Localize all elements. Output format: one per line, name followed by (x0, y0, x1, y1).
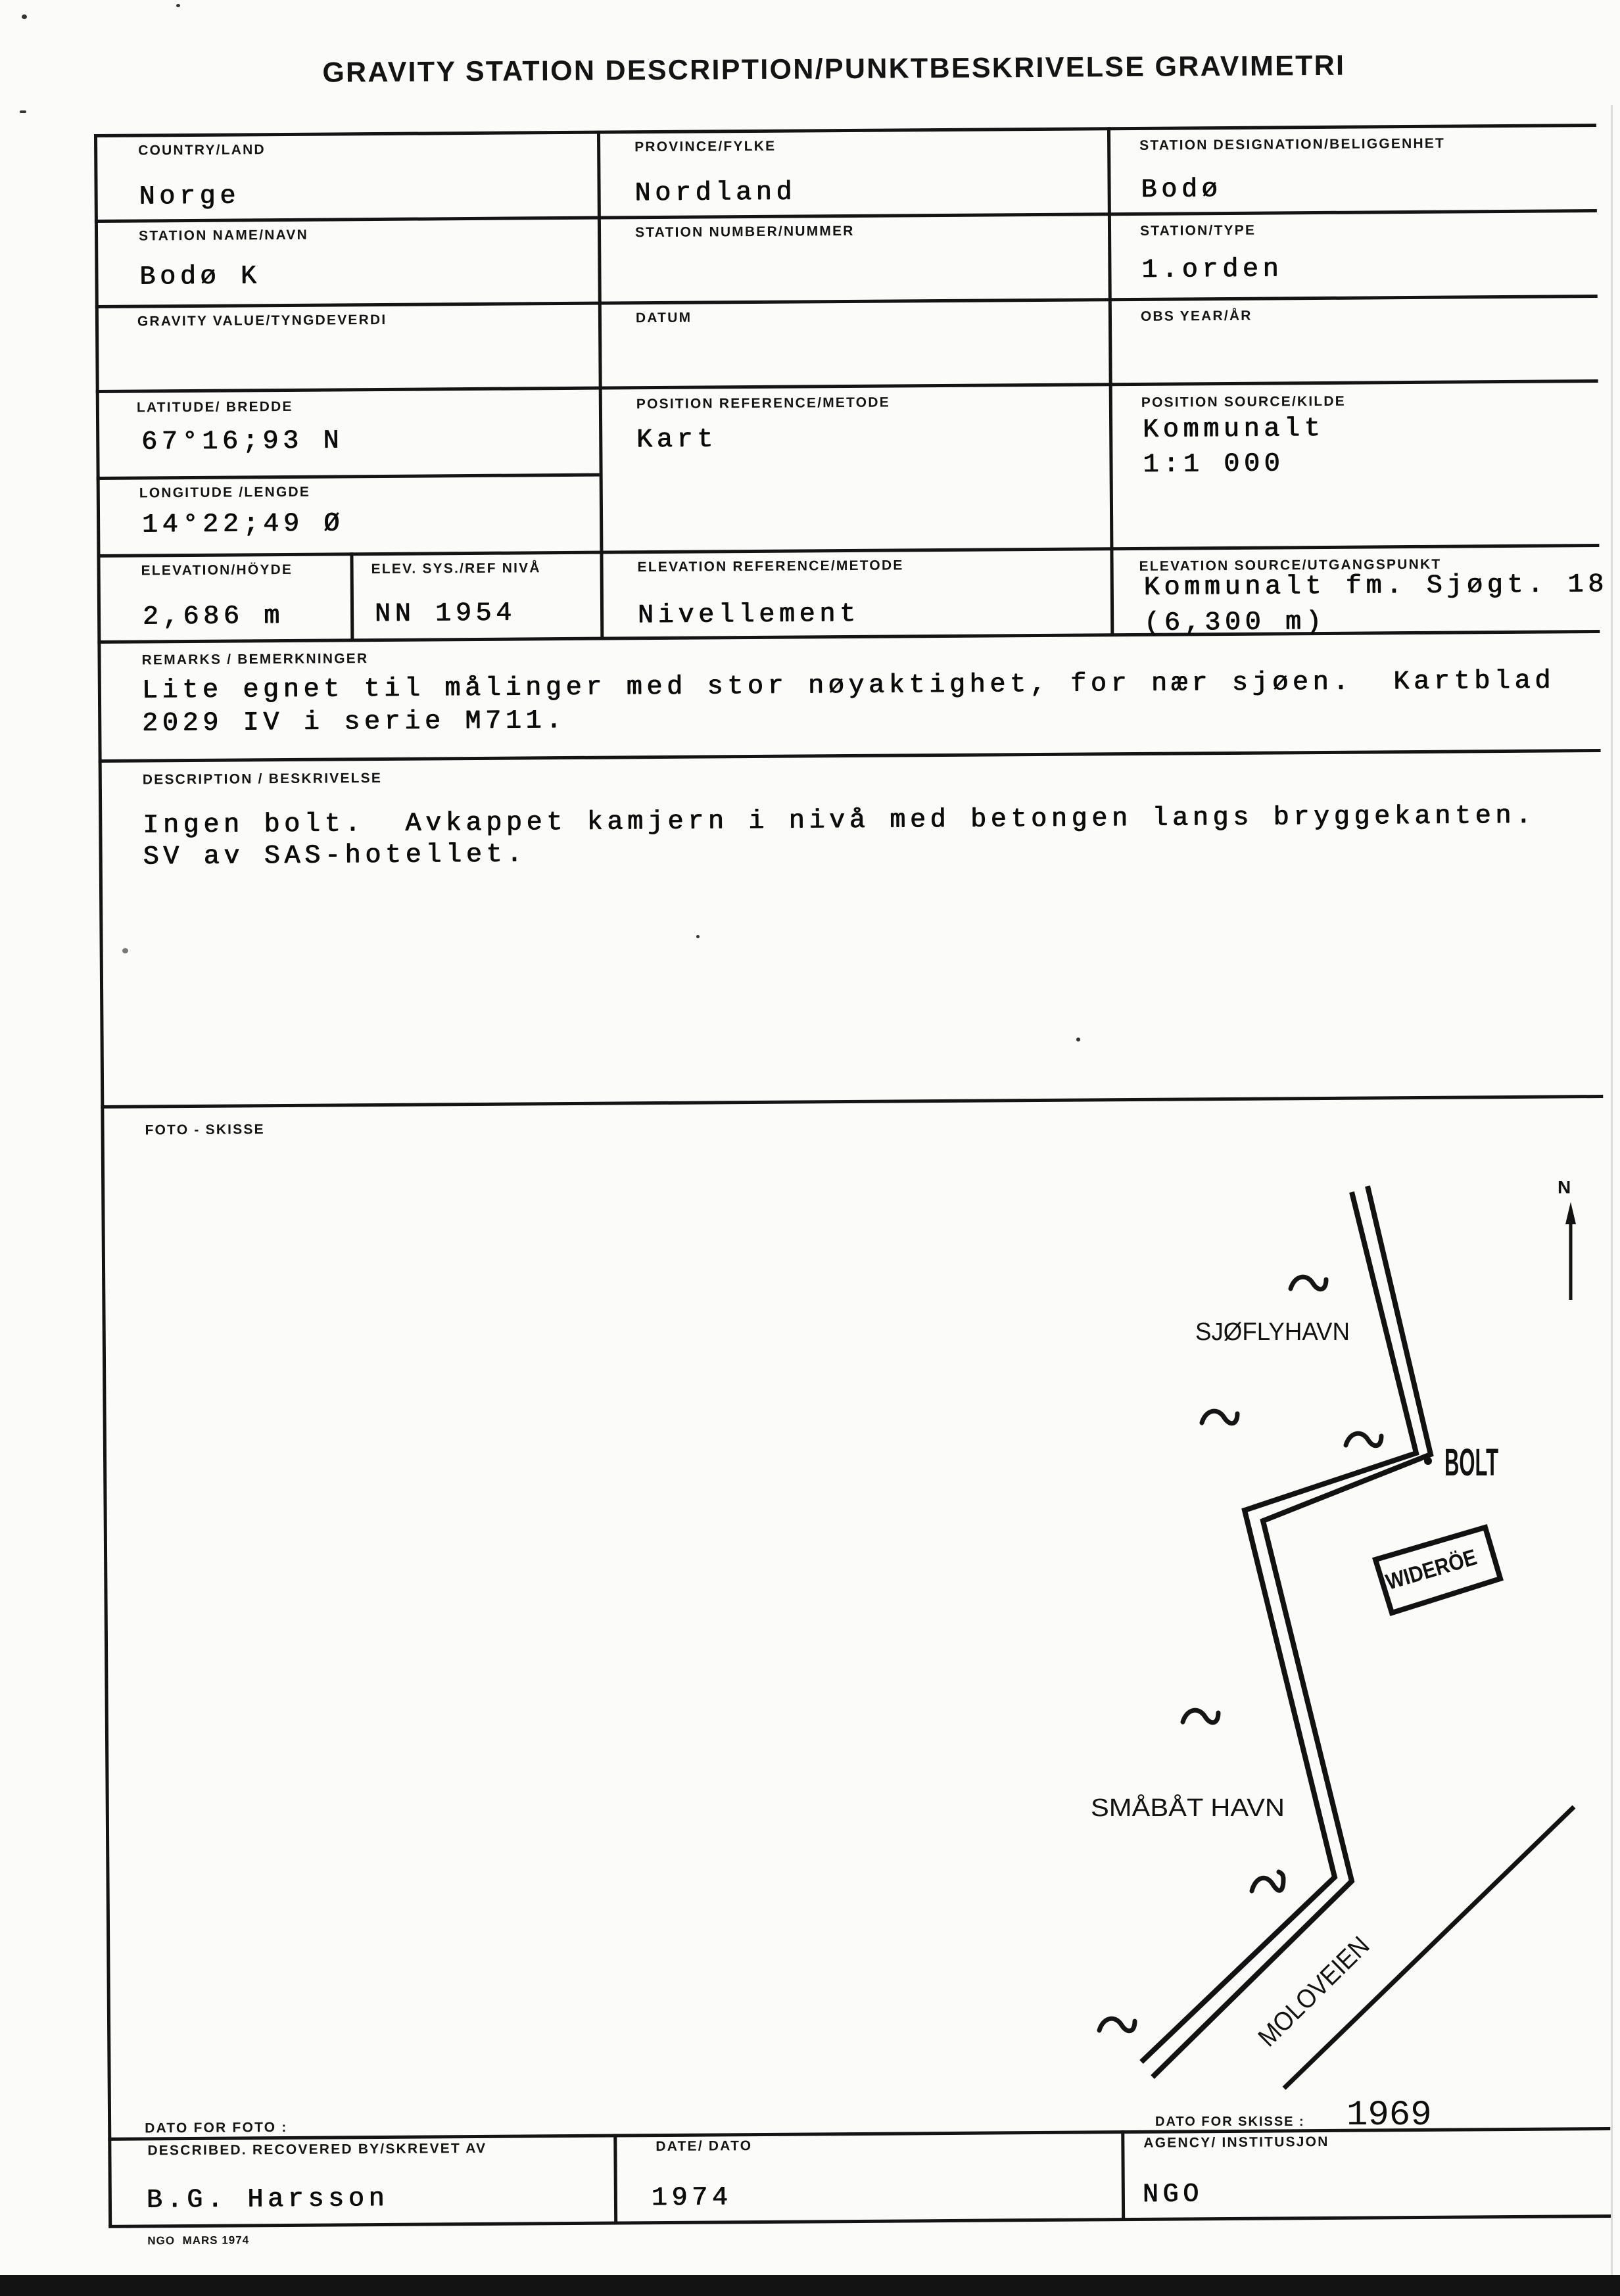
svg-text:SJØFLYHAVN: SJØFLYHAVN (1195, 1318, 1350, 1346)
svg-text:SMÅBÅT HAVN: SMÅBÅT HAVN (1091, 1793, 1285, 1822)
svg-text:MOLOVEIEN: MOLOVEIEN (1252, 1931, 1375, 2052)
svg-text:N: N (1558, 1177, 1571, 1197)
svg-text:BOLT: BOLT (1444, 1441, 1498, 1484)
svg-text:DATO FOR SKISSE :: DATO FOR SKISSE : (1155, 2115, 1305, 2129)
svg-text:1969: 1969 (1346, 2095, 1432, 2136)
